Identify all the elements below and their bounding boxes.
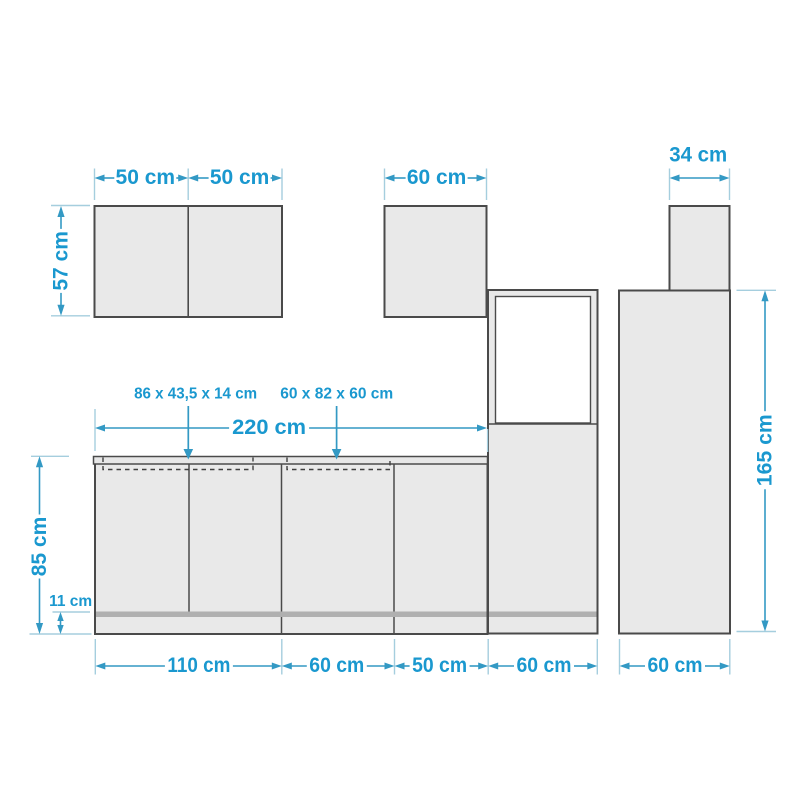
svg-text:34 cm: 34 cm bbox=[669, 144, 727, 167]
svg-text:60 cm: 60 cm bbox=[407, 166, 467, 189]
svg-text:60 cm: 60 cm bbox=[309, 654, 364, 677]
svg-text:60 x 82 x 60 cm: 60 x 82 x 60 cm bbox=[280, 386, 393, 403]
svg-text:60 cm: 60 cm bbox=[517, 654, 572, 677]
svg-text:11 cm: 11 cm bbox=[49, 593, 92, 610]
svg-text:165 cm: 165 cm bbox=[753, 414, 776, 486]
svg-text:50 cm: 50 cm bbox=[210, 166, 270, 189]
svg-text:60 cm: 60 cm bbox=[648, 654, 703, 677]
svg-text:86 x 43,5 x 14 cm: 86 x 43,5 x 14 cm bbox=[134, 386, 257, 403]
svg-text:85 cm: 85 cm bbox=[28, 517, 51, 577]
svg-text:110 cm: 110 cm bbox=[167, 654, 230, 677]
svg-text:57 cm: 57 cm bbox=[49, 231, 72, 291]
svg-text:50 cm: 50 cm bbox=[412, 654, 467, 677]
svg-text:50 cm: 50 cm bbox=[116, 166, 176, 189]
svg-text:220 cm: 220 cm bbox=[232, 416, 306, 439]
